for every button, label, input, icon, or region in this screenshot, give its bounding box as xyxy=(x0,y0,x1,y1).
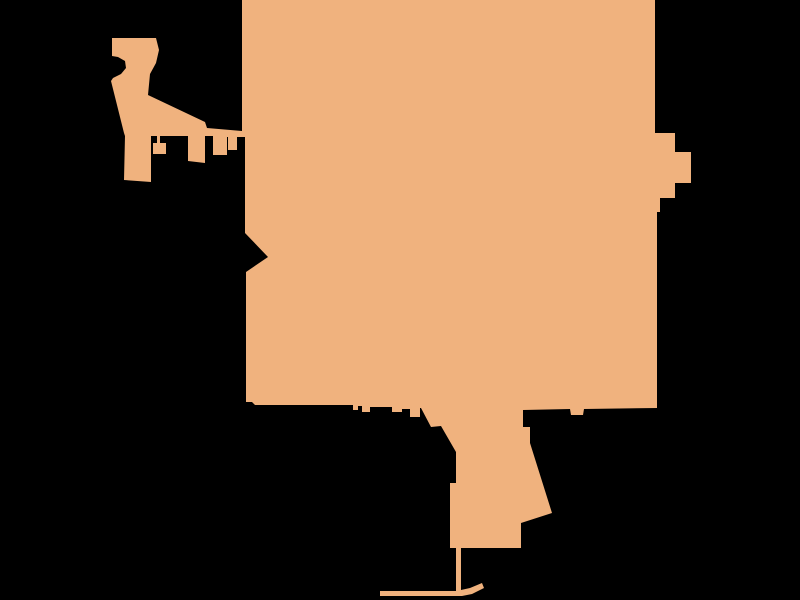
map-viewport xyxy=(0,0,800,600)
map-canvas xyxy=(0,0,800,600)
